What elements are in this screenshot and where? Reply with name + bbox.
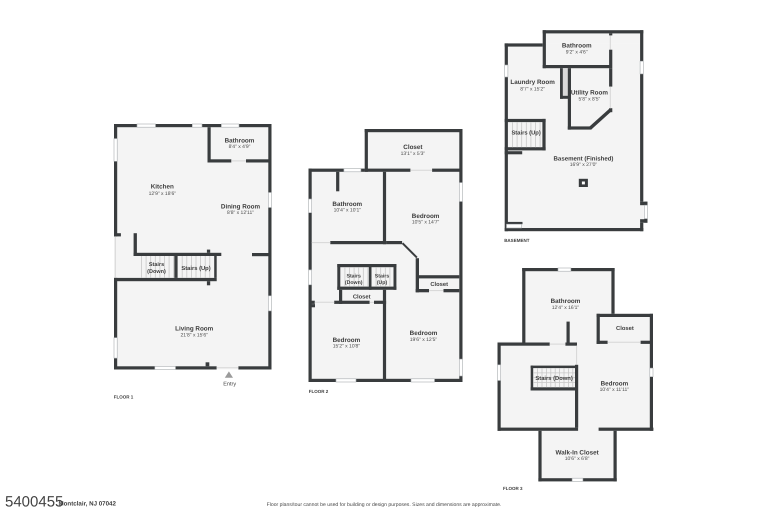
svg-text:Stairs (Up): Stairs (Up): [181, 265, 210, 272]
svg-text:(Down): (Down): [147, 269, 166, 275]
svg-text:Entry: Entry: [223, 381, 236, 387]
svg-text:Bedroom: Bedroom: [410, 330, 438, 337]
svg-text:13'1" x 5'3": 13'1" x 5'3": [401, 151, 426, 157]
svg-text:Closet: Closet: [353, 293, 371, 300]
svg-text:10'6" x 6'8": 10'6" x 6'8": [565, 456, 590, 462]
svg-text:10'4" x 10'1": 10'4" x 10'1": [334, 208, 362, 214]
svg-text:Montclair, NJ 07042: Montclair, NJ 07042: [59, 501, 117, 508]
svg-text:10'4" x 11'11": 10'4" x 11'11": [600, 387, 630, 393]
svg-text:(Up): (Up): [377, 280, 388, 286]
svg-text:FLOOR 3: FLOOR 3: [503, 486, 523, 491]
svg-text:FLOOR 1: FLOOR 1: [114, 395, 134, 400]
svg-text:15'2" x 10'8": 15'2" x 10'8": [333, 344, 361, 350]
svg-text:9'2" x 4'6": 9'2" x 4'6": [566, 49, 588, 55]
svg-text:Stairs (Up): Stairs (Up): [511, 129, 540, 136]
svg-text:19'6" x 12'5": 19'6" x 12'5": [410, 337, 438, 343]
svg-text:10'5" x 14'7": 10'5" x 14'7": [412, 219, 440, 225]
svg-text:12'4" x 16'1": 12'4" x 16'1": [552, 305, 580, 311]
svg-text:21'8" x 15'6": 21'8" x 15'6": [180, 332, 208, 338]
svg-text:Stairs: Stairs: [375, 273, 390, 279]
svg-text:Utility Room: Utility Room: [571, 89, 608, 96]
svg-text:BASEMENT: BASEMENT: [504, 238, 530, 243]
svg-text:12'9" x 18'6": 12'9" x 18'6": [149, 191, 177, 197]
svg-text:16'9" x 27'0": 16'9" x 27'0": [570, 162, 598, 168]
svg-text:5'8" x 8'5": 5'8" x 8'5": [578, 96, 600, 102]
svg-text:5400455: 5400455: [5, 494, 63, 511]
svg-text:Floor plans/tour cannot be use: Floor plans/tour cannot be used for buil…: [267, 502, 502, 508]
svg-text:Closet: Closet: [430, 281, 448, 288]
svg-text:8'4" x 4'9": 8'4" x 4'9": [229, 144, 251, 150]
svg-text:8'8" x 12'11": 8'8" x 12'11": [227, 210, 254, 216]
svg-text:Stairs: Stairs: [149, 262, 164, 268]
svg-text:(Down): (Down): [345, 280, 363, 286]
svg-text:FLOOR 2: FLOOR 2: [309, 389, 329, 394]
svg-text:Stairs (Down): Stairs (Down): [535, 375, 572, 382]
svg-text:Closet: Closet: [403, 144, 423, 151]
svg-text:Kitchen: Kitchen: [151, 184, 174, 191]
svg-text:Closet: Closet: [616, 325, 634, 332]
svg-text:8'7" x 15'2": 8'7" x 15'2": [520, 86, 545, 92]
svg-text:Laundry Room: Laundry Room: [510, 79, 555, 86]
svg-text:Stairs: Stairs: [346, 273, 361, 279]
